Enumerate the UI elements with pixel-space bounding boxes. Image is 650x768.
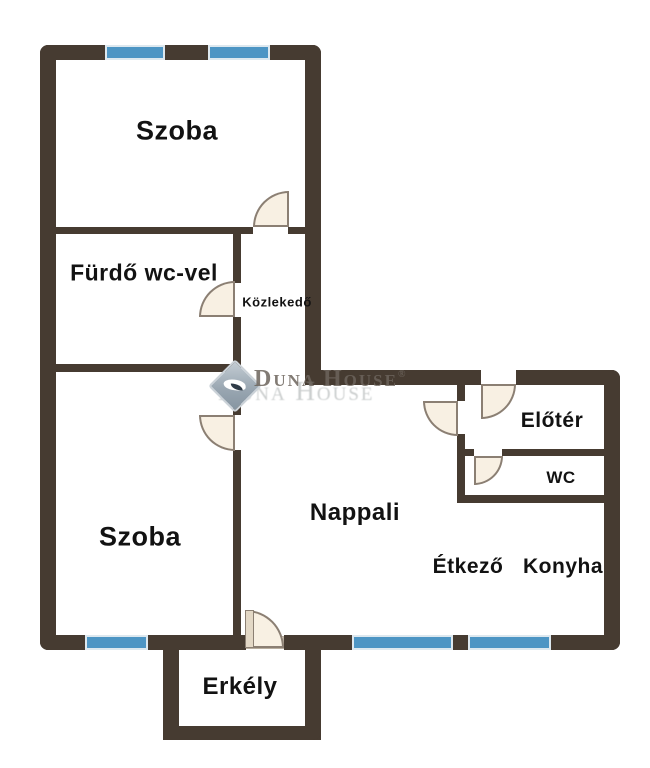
window-szoba-also [85, 635, 148, 650]
wall-mid-vertical-b [233, 317, 241, 415]
floor-plan: Szoba Fürdő wc-vel Közlekedő Szoba Nappa… [0, 0, 650, 768]
wall-eloter-wc-divider-b [502, 449, 610, 456]
door-arc-wc [474, 456, 503, 485]
window-nappali [352, 635, 453, 650]
wall-outer-right-lower [604, 370, 620, 650]
room-label-wc: WC [546, 468, 575, 488]
wall-top-right-a [305, 370, 481, 385]
wall-furdo-bottom [40, 364, 241, 372]
window-szoba-felso-1 [105, 45, 165, 60]
wall-mid-vertical-c [233, 450, 241, 642]
door-arc-szoba-also [199, 415, 235, 451]
room-label-eloter: Előtér [521, 409, 584, 433]
door-leaf-balcony [245, 610, 254, 648]
wall-bottom-d [453, 635, 468, 650]
door-arc-entrance [481, 384, 516, 419]
wall-szoba-furdo-divider-b [288, 227, 312, 234]
door-arc-nappali-eloter [423, 401, 458, 436]
wall-szoba-furdo-divider-a [48, 227, 253, 234]
wall-eloter-left-a [457, 378, 465, 401]
room-label-szoba-felso: Szoba [136, 116, 218, 147]
room-label-furdo: Fürdő wc-vel [70, 260, 218, 287]
wall-outer-left [40, 45, 56, 650]
room-label-kozlekedo: Közlekedő [242, 295, 312, 310]
wall-eloter-left-b [457, 434, 465, 503]
wall-outer-top [40, 45, 321, 60]
door-arc-szoba-felso [253, 191, 289, 227]
room-label-erkely: Erkély [202, 673, 277, 701]
room-label-szoba-also: Szoba [99, 522, 181, 553]
wall-bottom-e [551, 635, 620, 650]
wall-outer-right-upper [305, 45, 321, 378]
window-szoba-felso-2 [208, 45, 270, 60]
wall-bottom-a [40, 635, 85, 650]
wall-mid-vertical-a [233, 227, 241, 283]
wall-bottom-c [284, 635, 352, 650]
wall-wc-bottom [457, 495, 610, 503]
room-label-nappali: Nappali [310, 499, 400, 527]
room-label-konyha: Konyha [523, 555, 603, 579]
wall-eloter-wc-divider-a [457, 449, 474, 456]
wall-bottom-b [148, 635, 246, 650]
wall-erkely-bottom [163, 726, 321, 740]
room-label-etkezo: Étkező [433, 555, 504, 579]
window-konyha [468, 635, 551, 650]
